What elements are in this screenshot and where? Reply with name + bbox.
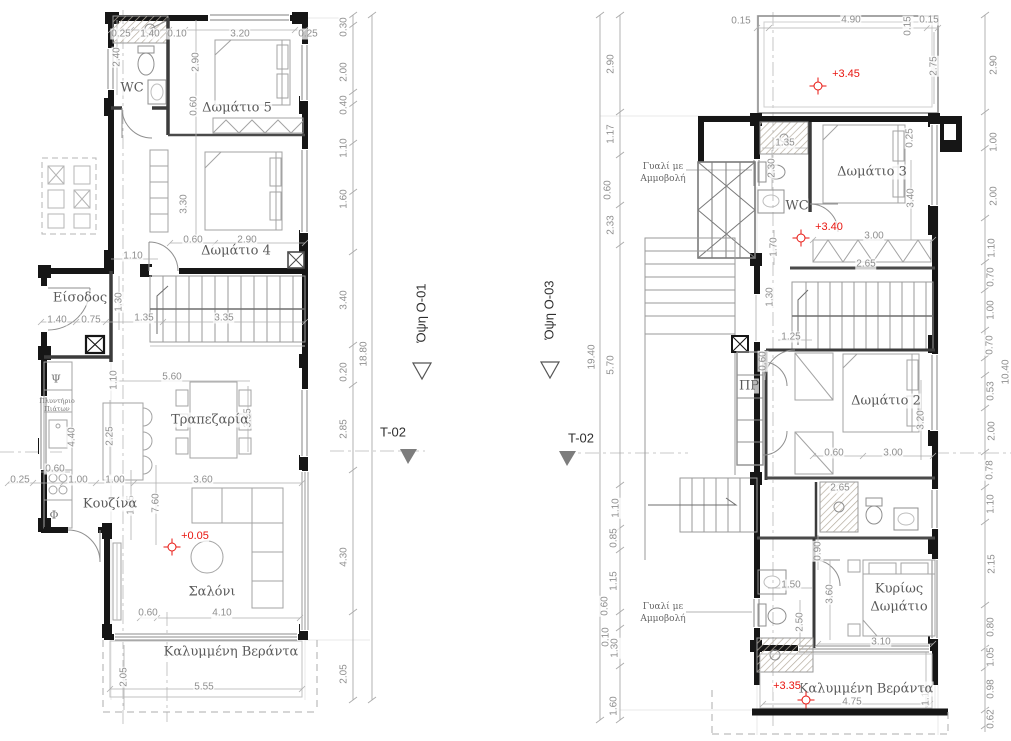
dimension-label: 1.10 (339, 137, 350, 158)
room-label: WC (120, 81, 143, 96)
dimension-label: 1.60 (339, 188, 350, 209)
dimension-label: 0.70 (986, 266, 997, 287)
dimension-label: 0.90 (813, 540, 824, 561)
dimension-label: 3.35 (213, 313, 234, 324)
dimension-label: 0.78 (985, 459, 996, 480)
section-label: Όψη Ο-01 (414, 283, 429, 342)
dimension-label: 0.60 (137, 608, 158, 619)
dimension-label: 1.30 (610, 637, 621, 658)
dimension-label: 5.70 (606, 354, 617, 375)
dimension-label: 0.70 (985, 334, 996, 355)
dimension-label: 2.75 (929, 55, 940, 76)
room-label: Δωμάτιο 2 (851, 394, 921, 409)
dimension-label: 2.05 (119, 666, 130, 687)
dimension-label: 10.40 (1001, 358, 1011, 385)
appliance-label: Πιάτων (44, 405, 69, 413)
room-label: ΠΡ (739, 379, 759, 394)
dimension-label: 1.70 (769, 236, 780, 257)
dimension-label: 0.40 (339, 94, 350, 115)
dimension-label: 1.00 (104, 475, 125, 486)
elevation-label: +3.35 (773, 680, 801, 692)
dimension-label: 2.00 (339, 61, 350, 82)
dimension-label: 1.00 (67, 475, 88, 486)
dimension-label: 1.10 (987, 237, 998, 258)
dimension-label: 2.85 (339, 418, 350, 439)
dimension-label: 2.33 (606, 214, 617, 235)
dimension-label: 0.85 (609, 527, 620, 548)
elevation-target-icon (810, 78, 827, 95)
dimension-label: 2.05 (339, 663, 350, 684)
dimension-label: 1.00 (989, 131, 1000, 152)
dimension-label: 4.30 (339, 546, 350, 567)
dimension-label: 0.25 (9, 475, 30, 486)
room-label: Είσοδος (53, 291, 107, 306)
room-label: Σαλόνι (188, 585, 235, 600)
dimension-label: 2.65 (855, 259, 876, 270)
dimension-label: 1.05 (986, 646, 997, 667)
dimension-label: 1.30 (765, 286, 776, 307)
elevation-label: +3.45 (832, 68, 860, 80)
appliance-label: Πλυντήριο (39, 397, 74, 405)
dimension-label: 1.35 (774, 138, 795, 149)
dimension-label: 1.10 (611, 497, 622, 518)
dimension-label: 0.60 (189, 95, 200, 116)
elevation-label: +3.40 (815, 221, 843, 233)
dimension-label: 0.98 (986, 678, 997, 699)
dimension-label: 2.00 (987, 420, 998, 441)
room-label: Δωμάτιο 4 (201, 244, 271, 259)
room-label: Δωμάτιο (870, 600, 927, 615)
room-label: WC (785, 199, 808, 214)
dimension-label: 2.15 (987, 553, 998, 574)
dimension-label: 1.10 (109, 369, 120, 390)
dimension-label: 2.90 (191, 51, 202, 72)
dimension-label: 3.60 (825, 583, 836, 604)
dimension-label: 1.17 (606, 123, 617, 144)
section-label: T-02 (568, 431, 594, 446)
annotation-label: Αμμοβολή (640, 614, 685, 624)
dimension-label: 3.40 (906, 187, 917, 208)
dimension-label: 0.15 (903, 15, 914, 36)
room-label: Κουζίνα (83, 497, 137, 512)
dimension-label: 0.10 (166, 29, 187, 40)
dimension-label: 1.35 (133, 313, 154, 324)
dimension-label: 3.00 (882, 448, 903, 459)
dimension-label: 1.40 (139, 29, 160, 40)
dimension-label: 0.60 (600, 595, 611, 616)
dimension-label: 2.90 (606, 53, 617, 74)
elevation-target-icon (164, 539, 181, 556)
annotation-layer: 0.251.400.103.200.252.402.900.603.300.60… (0, 0, 1011, 741)
annotation-label: Αμμοβολή (640, 174, 685, 184)
floor-plan-sheet: 0.251.400.103.200.252.402.900.603.300.60… (0, 0, 1011, 741)
dimension-label: 0.25 (110, 29, 131, 40)
dimension-label: 0.62 (986, 708, 997, 729)
annotation-label: Γυαλί με (643, 162, 683, 172)
dimension-label: 7.60 (151, 492, 162, 513)
section-label: T-02 (380, 425, 406, 440)
dimension-label: 2.00 (989, 185, 1000, 206)
dimension-label: 3.30 (179, 193, 190, 214)
dimension-label: 5.55 (193, 682, 214, 693)
dimension-label: 5.60 (161, 372, 182, 383)
dimension-label: 4.90 (840, 15, 861, 26)
room-label: Καλυμμένη Βεράντα (799, 682, 934, 697)
dimension-label: 2.65 (829, 483, 850, 494)
dimension-label: 19.40 (587, 343, 598, 370)
section-label: Όψη Ο-03 (542, 280, 557, 339)
dimension-label: 0.60 (44, 464, 65, 475)
dimension-label: 1.00 (986, 299, 997, 320)
dimension-label: 0.15 (730, 16, 751, 27)
dimension-label: 1.10 (122, 251, 143, 262)
dimension-label: 2.25 (105, 425, 116, 446)
elevation-label: +0.05 (181, 530, 209, 542)
dimension-label: 2.30 (767, 157, 778, 178)
appliance-label: Ψ (51, 373, 61, 386)
dimension-label: 0.80 (986, 616, 997, 637)
dimension-label: 1.30 (114, 291, 125, 312)
dimension-label: 3.10 (870, 637, 891, 648)
dimension-label: 4.10 (211, 608, 232, 619)
dimension-label: 0.30 (339, 16, 350, 37)
dimension-label: 0.25 (297, 29, 318, 40)
dimension-label: 18.80 (359, 340, 370, 367)
dimension-label: 3.60 (192, 475, 213, 486)
dimension-label: 1.40 (46, 315, 67, 326)
elevation-target-icon (798, 692, 815, 709)
dimension-label: 2.40 (112, 46, 123, 67)
appliance-label: Φ (49, 509, 58, 522)
dimension-label: 1.50 (780, 580, 801, 591)
dimension-label: 4.40 (67, 426, 78, 447)
room-label: Τραπεζαρία (171, 413, 249, 428)
dimension-label: 0.20 (339, 361, 350, 382)
dimension-label: 0.60 (823, 448, 844, 459)
elevation-target-icon (793, 230, 810, 247)
dimension-label: 0.60 (758, 350, 769, 371)
dimension-label: 4.75 (841, 697, 862, 708)
room-label: Δωμάτιο 5 (202, 101, 272, 116)
dimension-label: 0.75 (80, 315, 101, 326)
room-label: Δωμάτιο 3 (837, 165, 907, 180)
dimension-label: 1.15 (609, 570, 620, 591)
dimension-label: 3.20 (916, 409, 927, 430)
room-label: Καλυμμένη Βεράντα (164, 645, 299, 660)
dimension-label: 3.20 (229, 29, 250, 40)
dimension-label: 0.15 (918, 15, 939, 26)
dimension-label: 0.60 (603, 179, 614, 200)
dimension-label: 1.10 (986, 493, 997, 514)
dimension-label: 1.25 (780, 332, 801, 343)
annotation-label: Γυαλί με (643, 602, 683, 612)
room-label: Κυρίως (875, 582, 923, 597)
dimension-label: 3.00 (863, 231, 884, 242)
dimension-label: 0.25 (905, 127, 916, 148)
dimension-label: 2.50 (795, 611, 806, 632)
dimension-label: 3.40 (339, 289, 350, 310)
dimension-label: 1.60 (609, 695, 620, 716)
dimension-label: 0.53 (986, 380, 997, 401)
dimension-label: 2.90 (989, 54, 1000, 75)
